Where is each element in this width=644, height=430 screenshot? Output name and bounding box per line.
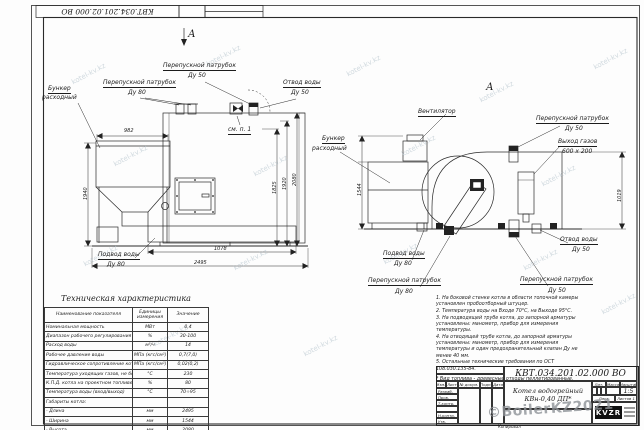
cell <box>168 398 209 407</box>
water-in-label: Подвод воды <box>383 250 425 259</box>
gas-out-label: Выход газов <box>558 138 597 147</box>
cell: - Длина <box>45 407 133 416</box>
drawing-sheet: kotel-kv.kz kotel-kv.kz kotel-kv.kz kote… <box>0 0 644 430</box>
cell: °С <box>133 369 168 378</box>
dim-1544: 1544 <box>357 183 363 196</box>
cell: 0,4 <box>168 323 209 332</box>
note-line: 3. На подводящей трубе котла, до запорно… <box>436 316 582 335</box>
dim-2495: 2495 <box>194 260 207 266</box>
cell: м³/ч <box>133 341 168 350</box>
bypass50-top-size: Ду 50 <box>565 125 583 132</box>
cell: Температура уходящих газов, не более <box>45 369 133 378</box>
table-row: Рабочее давление водыМПа (кгс/см²)0,7(7,… <box>45 351 209 360</box>
cell: мм <box>133 407 168 416</box>
cell: °С <box>133 388 168 397</box>
tech-table-header: Наименование показателя Единицы измерени… <box>45 308 209 323</box>
gas-out-size: 600 х 200 <box>562 148 592 155</box>
cell: 2080 <box>168 426 209 430</box>
bunker-label: расходный <box>42 94 77 101</box>
table-row: К.П.Д. котла на проектном топливе%80 <box>45 379 209 388</box>
cell: - Ширина <box>45 416 133 425</box>
dim-982: 982 <box>124 128 134 134</box>
cell <box>133 398 168 407</box>
cell: 1544 <box>168 416 209 425</box>
bypass50-top-label: Перепускной патрубок <box>536 115 609 124</box>
cell: 0,02(0,2) <box>168 360 209 369</box>
cell: 70÷95 <box>168 388 209 397</box>
table-row: Габариты котла: <box>45 398 209 407</box>
col-value: Значение <box>168 308 209 323</box>
bypass80-label: Перепускной патрубок <box>103 79 176 88</box>
cell: Габариты котла: <box>45 398 133 407</box>
bypass80-size: Ду 80 <box>128 89 146 96</box>
dim-1940: 1940 <box>83 187 89 200</box>
top-designation-stamp: КВТ.034.201.02.000 ВО <box>36 5 179 17</box>
bypass80-label: Перепускной патрубок <box>368 277 441 286</box>
bypass80-size: Ду 80 <box>395 288 413 295</box>
cell: 230 <box>168 369 209 378</box>
cell: 2495 <box>168 407 209 416</box>
note-line: 1. На боковой стенке котла в области топ… <box>436 296 582 308</box>
water-in-label: Подвод воды <box>98 251 140 260</box>
table-row: - Высотамм2080 <box>45 426 209 430</box>
cell: МВт <box>133 323 168 332</box>
tech-table: Наименование показателя Единицы измерени… <box>44 307 209 430</box>
cell: 14 <box>168 341 209 350</box>
cell: мм <box>133 416 168 425</box>
bunker-label: расходный <box>312 145 347 152</box>
tech-table-title: Техническая характеристика <box>44 294 208 303</box>
cell: МПа (кгс/см²) <box>133 351 168 360</box>
bunker-label: Бункер <box>48 85 71 94</box>
dim-1920: 1920 <box>282 177 288 190</box>
table-row: Диапазон рабочего регулирования%30-100 <box>45 332 209 341</box>
bunker-label: Бункер <box>322 135 345 144</box>
cell: 0,7(7,0) <box>168 351 209 360</box>
see-item-label: см. п. 1 <box>228 126 251 135</box>
bypass50-size: Ду 50 <box>188 72 206 79</box>
water-out-label: Отвод воды <box>560 236 598 245</box>
cell: Расход воды <box>45 341 133 350</box>
water-out-label: Отвод воды <box>283 79 321 88</box>
copied-label: Копировал <box>498 424 521 429</box>
table-row: Температура воды (вход/выход)°С70÷95 <box>45 388 209 397</box>
cell: Рабочее давление воды <box>45 351 133 360</box>
note-line: 4. На отводящей трубе котла, до запорной… <box>436 335 582 360</box>
dim-1078: 1078 <box>214 246 227 252</box>
cell: Диапазон рабочего регулирования <box>45 332 133 341</box>
dim-1825: 1825 <box>272 181 278 194</box>
cell: % <box>133 332 168 341</box>
cell: МПа (кгс/см²) <box>133 360 168 369</box>
cell: К.П.Д. котла на проектном топливе <box>45 379 133 388</box>
cell: Номинальная мощность <box>45 323 133 332</box>
water-in-size: Ду 80 <box>107 261 125 268</box>
cell: Гидравлическое сопротивление котла <box>45 360 133 369</box>
water-in-size: Ду 80 <box>394 260 412 267</box>
col-units: Единицы измерения <box>133 308 168 323</box>
water-out-size: Ду 50 <box>291 89 309 96</box>
col-name: Наименование показателя <box>45 308 133 323</box>
bypass50-bot-label: Перепускной патрубок <box>520 276 593 285</box>
dim-2080: 2080 <box>292 173 298 186</box>
view-marker-right: А <box>486 82 494 93</box>
table-row: Температура уходящих газов, не более°С23… <box>45 369 209 378</box>
cell: - Высота <box>45 426 133 430</box>
bypass50-bot-size: Ду 50 <box>548 287 566 294</box>
bypass50-label: Перепускной патрубок <box>163 62 236 71</box>
note-line: 2. Температура воды на Входе 70°С, на Вы… <box>436 309 582 315</box>
table-row: - Ширинамм1544 <box>45 416 209 425</box>
table-row: - Длинамм2495 <box>45 407 209 416</box>
cell: Температура воды (вход/выход) <box>45 388 133 397</box>
cell: % <box>133 379 168 388</box>
table-row: Гидравлическое сопротивление котлаМПа (к… <box>45 360 209 369</box>
view-marker-top: А <box>188 29 196 40</box>
fan-label: Вентилятор <box>418 108 456 117</box>
table-row: Номинальная мощностьМВт0,4 <box>45 323 209 332</box>
dim-1019: 1019 <box>617 189 623 202</box>
cell: мм <box>133 426 168 430</box>
water-out-size: Ду 50 <box>572 246 590 253</box>
cell: 30-100 <box>168 332 209 341</box>
cell: 80 <box>168 379 209 388</box>
table-row: Расход водым³/ч14 <box>45 341 209 350</box>
